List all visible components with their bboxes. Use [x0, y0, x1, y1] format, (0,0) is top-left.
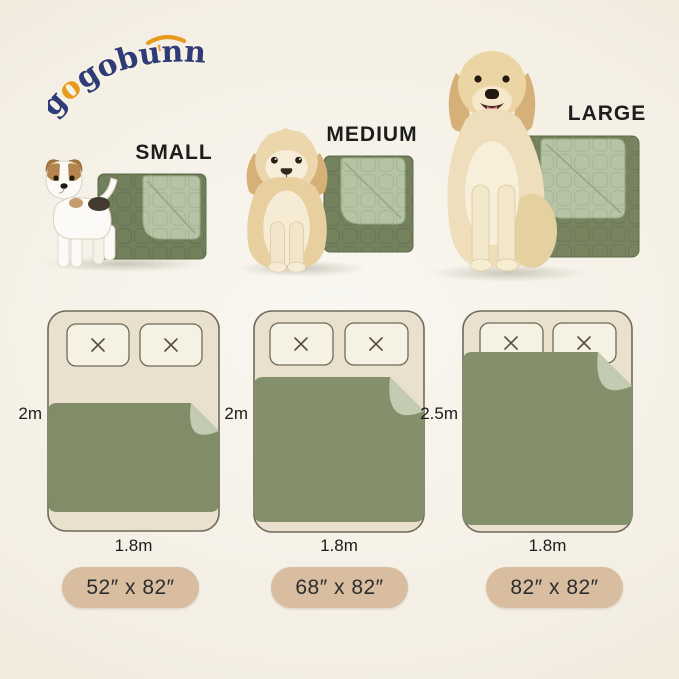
bed-width-label: 1.8m: [47, 535, 220, 557]
dimension-badge-large: 82″ x 82″: [486, 567, 623, 608]
dog-eye: [271, 157, 278, 164]
pillow-right: [345, 323, 408, 365]
dog-eye: [295, 157, 302, 164]
bed-width-label: 1.8m: [462, 535, 633, 557]
size-label-small: SMALL: [119, 141, 229, 165]
brand-logo: gogobunny: [48, 30, 220, 128]
dog-leg: [472, 185, 489, 267]
brand-wordmark: gogobunny: [48, 30, 207, 123]
dog-nose: [60, 183, 67, 189]
dog-paw: [496, 259, 518, 271]
bed-length-label: 2m: [206, 403, 248, 425]
dog-eye: [69, 175, 74, 180]
dimension-badge-medium: 68″ x 82″: [271, 567, 408, 608]
pillow-left: [67, 324, 129, 366]
medium-dog-photo: [234, 116, 340, 274]
small-dog-photo: [34, 151, 124, 269]
large-dog-photo: [426, 33, 566, 278]
shoulder-patch: [69, 198, 83, 208]
dog-leg: [498, 185, 515, 267]
size-label-large: LARGE: [552, 102, 662, 126]
bed-length-label: 2m: [2, 403, 42, 425]
bed-diagram-large: [462, 310, 633, 533]
dog-paw: [268, 262, 286, 272]
pillow-left: [270, 323, 333, 365]
pillow-right: [140, 324, 202, 366]
bed-length-label: 2.5m: [406, 403, 458, 425]
bed-diagram-small: [47, 310, 220, 532]
bed-width-label: 1.8m: [253, 535, 425, 557]
dog-paw: [288, 262, 306, 272]
dog-paw: [470, 259, 492, 271]
dog-eye: [53, 175, 58, 180]
saddle-patch: [88, 197, 110, 211]
dog-eye: [474, 75, 481, 82]
dog-nose: [485, 89, 499, 99]
dimension-badge-small: 52″ x 82″: [62, 567, 199, 608]
dog-eye: [502, 75, 509, 82]
size-guide-infographic: gogobunny SMALL MEDIUM: [0, 0, 679, 679]
bed-diagram-medium: [253, 310, 425, 533]
